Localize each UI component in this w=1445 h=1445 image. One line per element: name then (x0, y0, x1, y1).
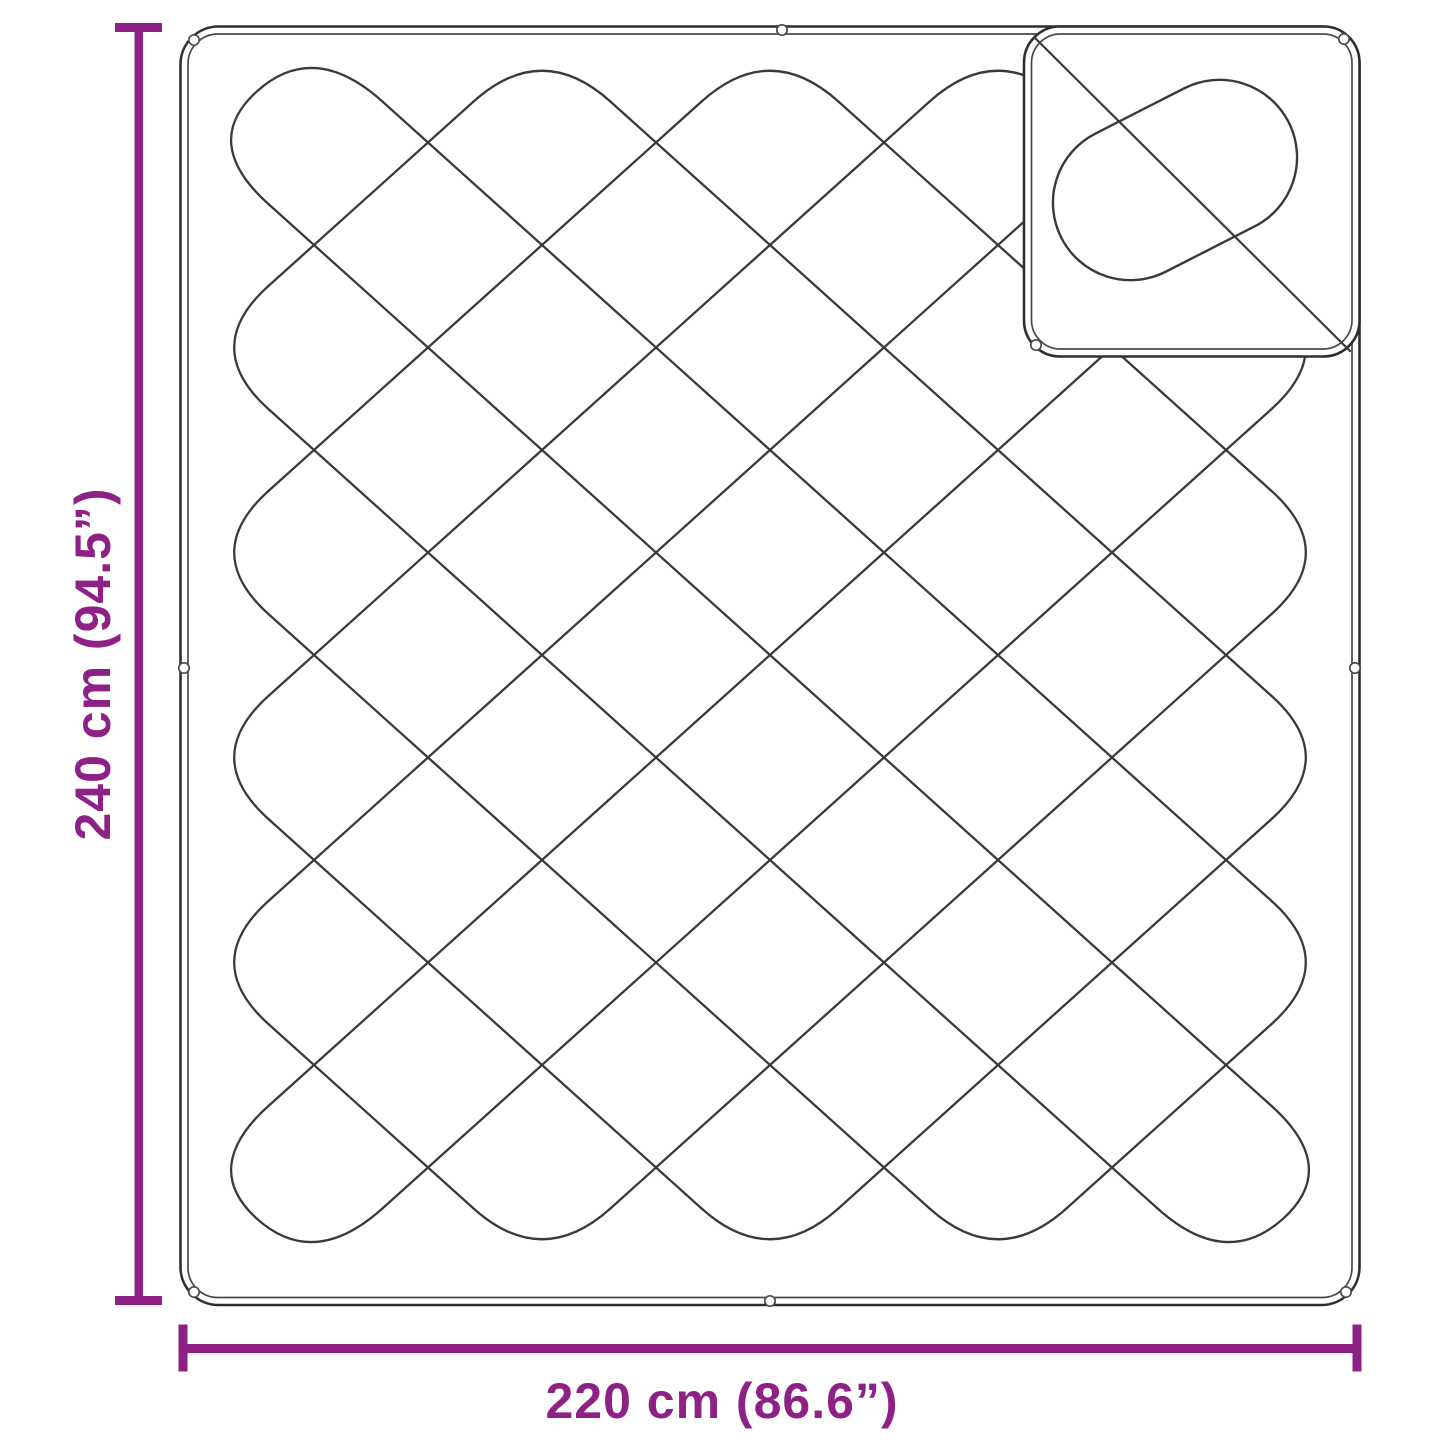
eyelet-icon (189, 1287, 199, 1297)
eyelet-icon (1350, 663, 1360, 673)
eyelet-icon (189, 35, 199, 45)
height-dimension-line (135, 27, 144, 1304)
height-dimension (115, 23, 162, 1305)
eyelet-icon (1341, 1287, 1351, 1297)
width-dimension-label: 220 cm (86.6”) (545, 1372, 898, 1430)
eyelet-icon (1339, 34, 1349, 44)
dimension-diagram (0, 0, 1445, 1445)
eyelet-icon (765, 1296, 775, 1306)
width-dimension-line (183, 1344, 1357, 1353)
width-dimension-cap-left (179, 1325, 188, 1372)
eyelet-icon (777, 25, 787, 35)
height-dimension-label: 240 cm (94.5”) (64, 487, 122, 840)
width-dimension (179, 1325, 1362, 1372)
eyelet-icon (179, 663, 189, 673)
width-dimension-cap-right (1353, 1325, 1362, 1372)
height-dimension-cap-top (115, 23, 162, 32)
corner-fold-flap (1024, 27, 1360, 357)
eyelet-icon (1031, 340, 1041, 350)
height-dimension-cap-bottom (115, 1296, 162, 1305)
